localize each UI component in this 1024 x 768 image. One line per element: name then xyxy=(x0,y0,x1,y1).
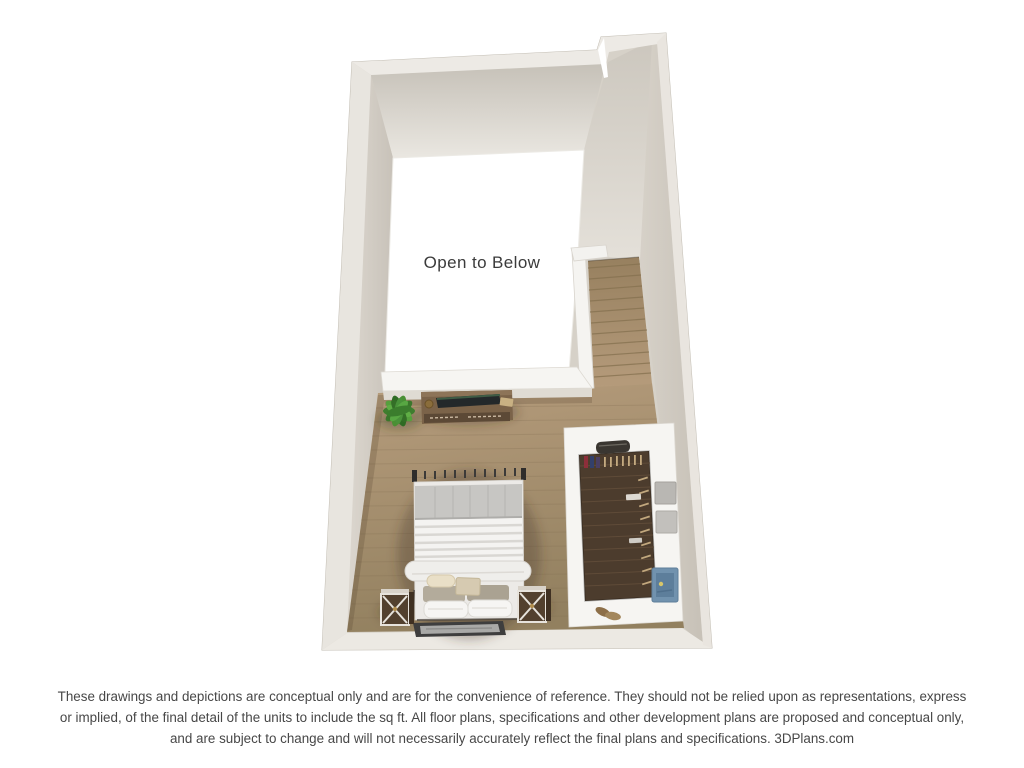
decor-bowl xyxy=(425,400,433,408)
duffel-bag xyxy=(596,440,631,454)
walk-in-closet xyxy=(564,423,683,627)
disclaimer-line-1: These drawings and depictions are concep… xyxy=(0,686,1024,707)
area-rug xyxy=(413,621,506,637)
nightstand-left xyxy=(381,589,414,625)
dresser xyxy=(421,390,513,424)
bolster-pillow xyxy=(427,575,455,587)
nightstand-right xyxy=(518,586,551,622)
disclaimer: These drawings and depictions are concep… xyxy=(0,686,1024,749)
gray-blanket xyxy=(415,484,522,520)
open-to-below-label: Open to Below xyxy=(392,253,572,273)
striped-sheet xyxy=(415,518,523,564)
floor-plan-page: Open to Below These drawings and depicti… xyxy=(0,0,1024,768)
accent-pillow xyxy=(456,578,481,596)
floor-plan-rendering xyxy=(0,0,1024,768)
top-wall-inner-face xyxy=(371,62,606,158)
disclaimer-line-2: or implied, of the final detail of the u… xyxy=(0,707,1024,728)
disclaimer-line-3: and are subject to change and will not n… xyxy=(0,728,1024,749)
wall-art xyxy=(652,568,678,602)
bed xyxy=(405,468,531,620)
